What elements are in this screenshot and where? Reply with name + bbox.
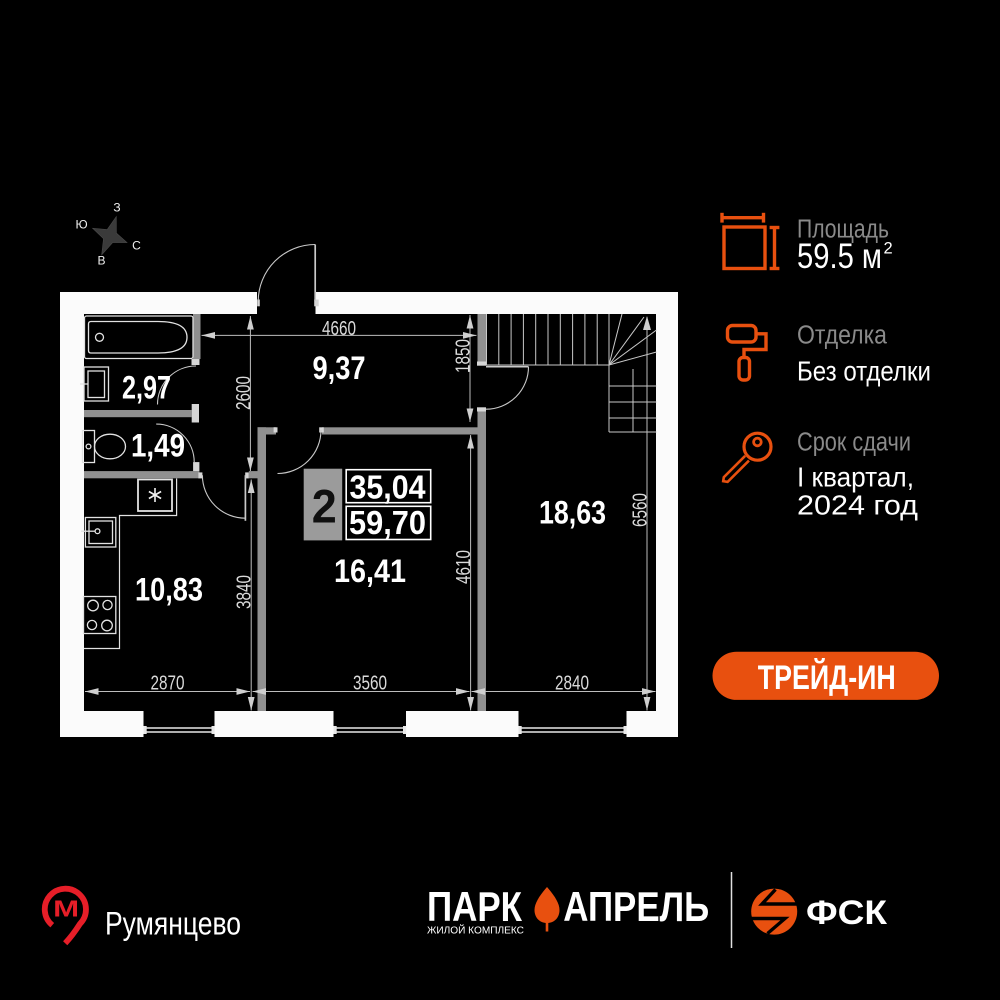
svg-text:4660: 4660 bbox=[322, 317, 356, 340]
svg-text:18,63: 18,63 bbox=[539, 495, 606, 531]
svg-text:Срок сдачи: Срок сдачи bbox=[797, 429, 911, 457]
svg-text:35,04: 35,04 bbox=[350, 468, 427, 505]
svg-text:Ю: Ю bbox=[75, 218, 87, 232]
svg-text:ЖИЛОЙ КОМПЛЕКС: ЖИЛОЙ КОМПЛЕКС bbox=[427, 924, 525, 937]
svg-text:I квартал,: I квартал, bbox=[797, 462, 914, 493]
svg-text:ФСК: ФСК bbox=[806, 894, 887, 932]
svg-text:3560: 3560 bbox=[353, 672, 387, 695]
svg-text:59.5 м: 59.5 м bbox=[797, 237, 882, 276]
svg-text:2024 год: 2024 год bbox=[797, 490, 918, 521]
svg-text:С: С bbox=[132, 239, 141, 253]
svg-text:3840: 3840 bbox=[233, 575, 256, 609]
svg-text:16,41: 16,41 bbox=[334, 553, 406, 589]
svg-text:М: М bbox=[53, 896, 79, 922]
svg-text:9,37: 9,37 bbox=[313, 350, 366, 386]
svg-text:2870: 2870 bbox=[151, 672, 185, 695]
svg-text:2: 2 bbox=[312, 479, 337, 532]
svg-text:2: 2 bbox=[884, 240, 893, 258]
svg-text:59,70: 59,70 bbox=[349, 504, 426, 541]
svg-text:6560: 6560 bbox=[628, 493, 651, 527]
svg-text:Без отделки: Без отделки bbox=[797, 356, 931, 387]
svg-text:ТРЕЙД-ИН: ТРЕЙД-ИН bbox=[758, 658, 896, 697]
svg-text:10,83: 10,83 bbox=[135, 572, 203, 608]
svg-text:Отделка: Отделка bbox=[797, 322, 888, 350]
svg-text:ПАРК: ПАРК bbox=[427, 883, 522, 930]
svg-text:1,49: 1,49 bbox=[131, 428, 185, 464]
svg-text:З: З bbox=[113, 201, 120, 215]
svg-text:2840: 2840 bbox=[555, 672, 589, 695]
svg-text:4610: 4610 bbox=[452, 550, 475, 584]
svg-text:В: В bbox=[97, 254, 105, 268]
svg-text:Румянцево: Румянцево bbox=[105, 906, 241, 942]
svg-text:АПРЕЛЬ: АПРЕЛЬ bbox=[563, 883, 709, 930]
svg-text:2600: 2600 bbox=[232, 376, 255, 410]
svg-text:1850: 1850 bbox=[451, 339, 474, 373]
svg-text:2,97: 2,97 bbox=[122, 370, 171, 406]
